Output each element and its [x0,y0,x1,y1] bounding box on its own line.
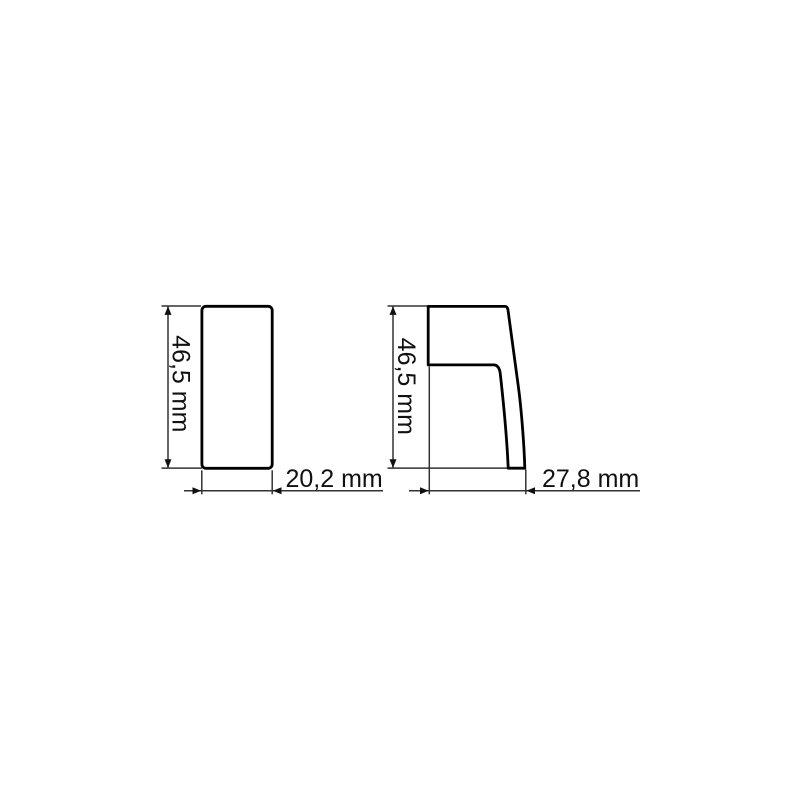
svg-text:46,5 mm: 46,5 mm [166,335,194,432]
svg-text:27,8 mm: 27,8 mm [542,465,639,493]
svg-text:46,5 mm: 46,5 mm [392,338,420,435]
svg-text:20,2 mm: 20,2 mm [286,465,383,493]
